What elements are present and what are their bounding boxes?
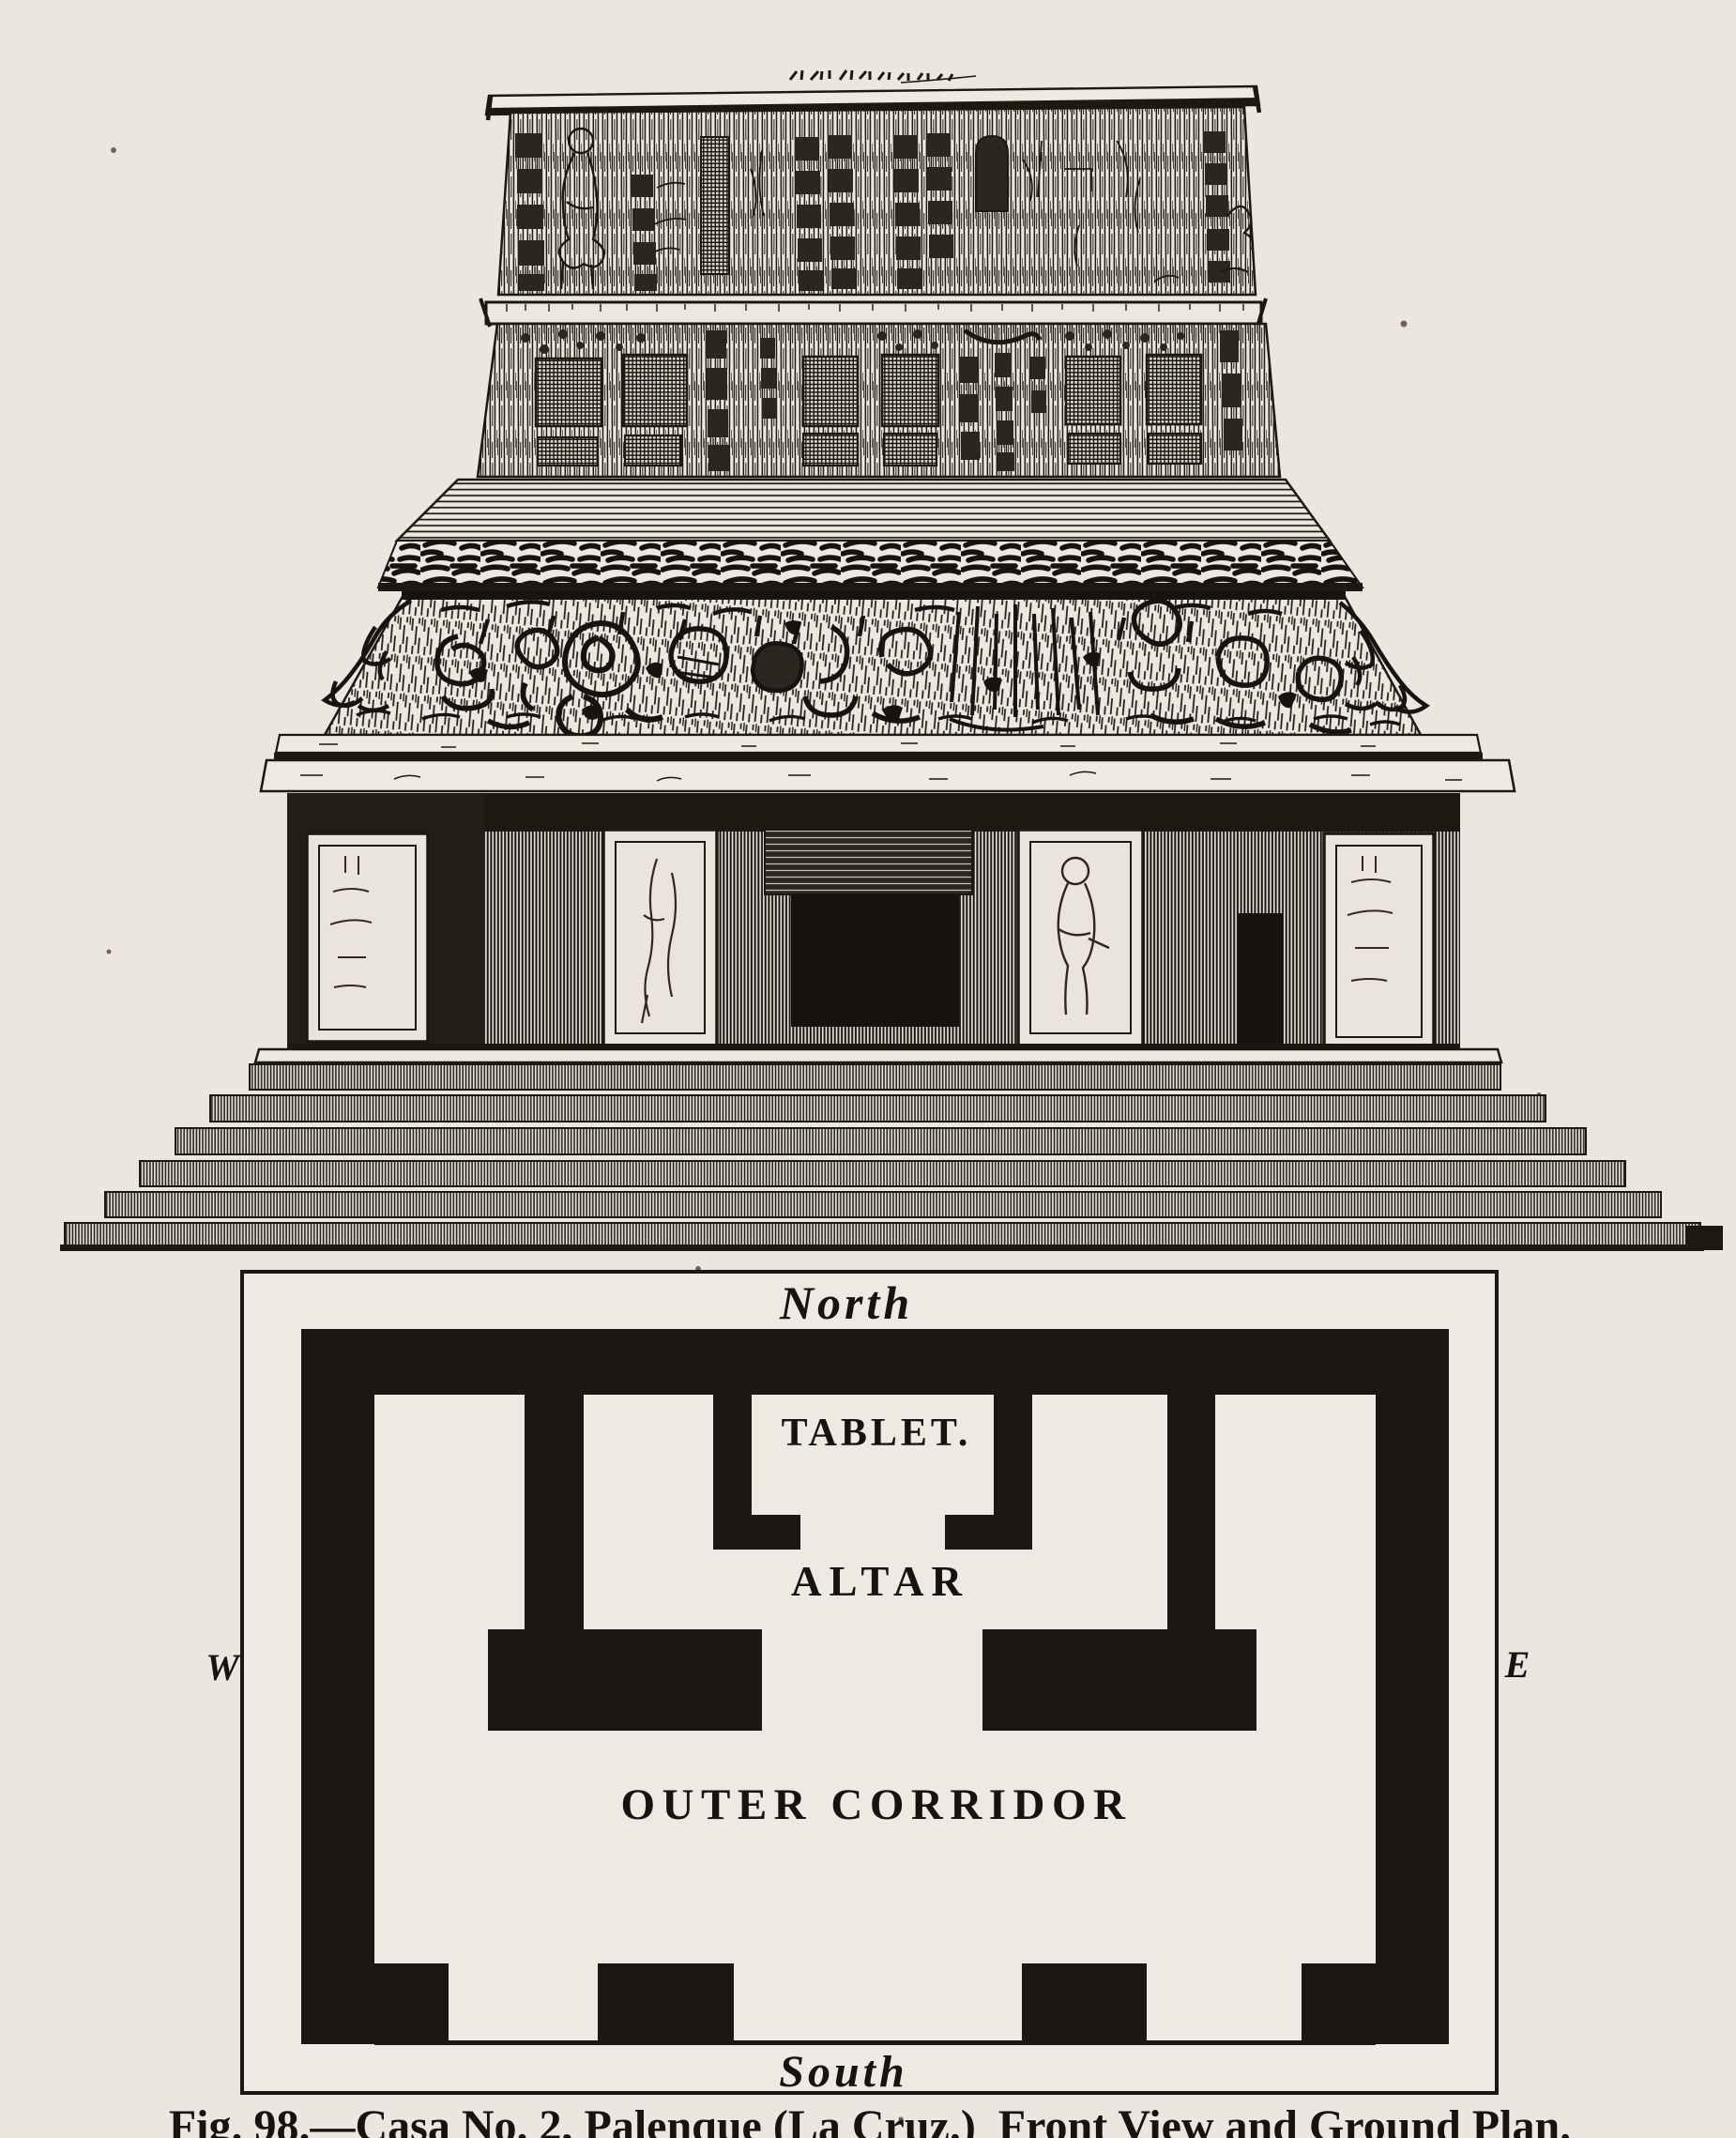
- svg-text:North: North: [779, 1276, 913, 1329]
- svg-text:OUTER CORRIDOR: OUTER CORRIDOR: [620, 1780, 1132, 1829]
- svg-text:Fig. 98.—Casa No. 2, Palenque: Fig. 98.—Casa No. 2, Palenque (La Cruz.)…: [169, 2101, 1571, 2138]
- svg-text:South: South: [779, 2047, 907, 2097]
- svg-text:W: W: [206, 1646, 241, 1688]
- svg-text:ALTAR: ALTAR: [791, 1558, 969, 1605]
- svg-text:E: E: [1504, 1643, 1530, 1686]
- svg-text:TABLET.: TABLET.: [782, 1412, 972, 1455]
